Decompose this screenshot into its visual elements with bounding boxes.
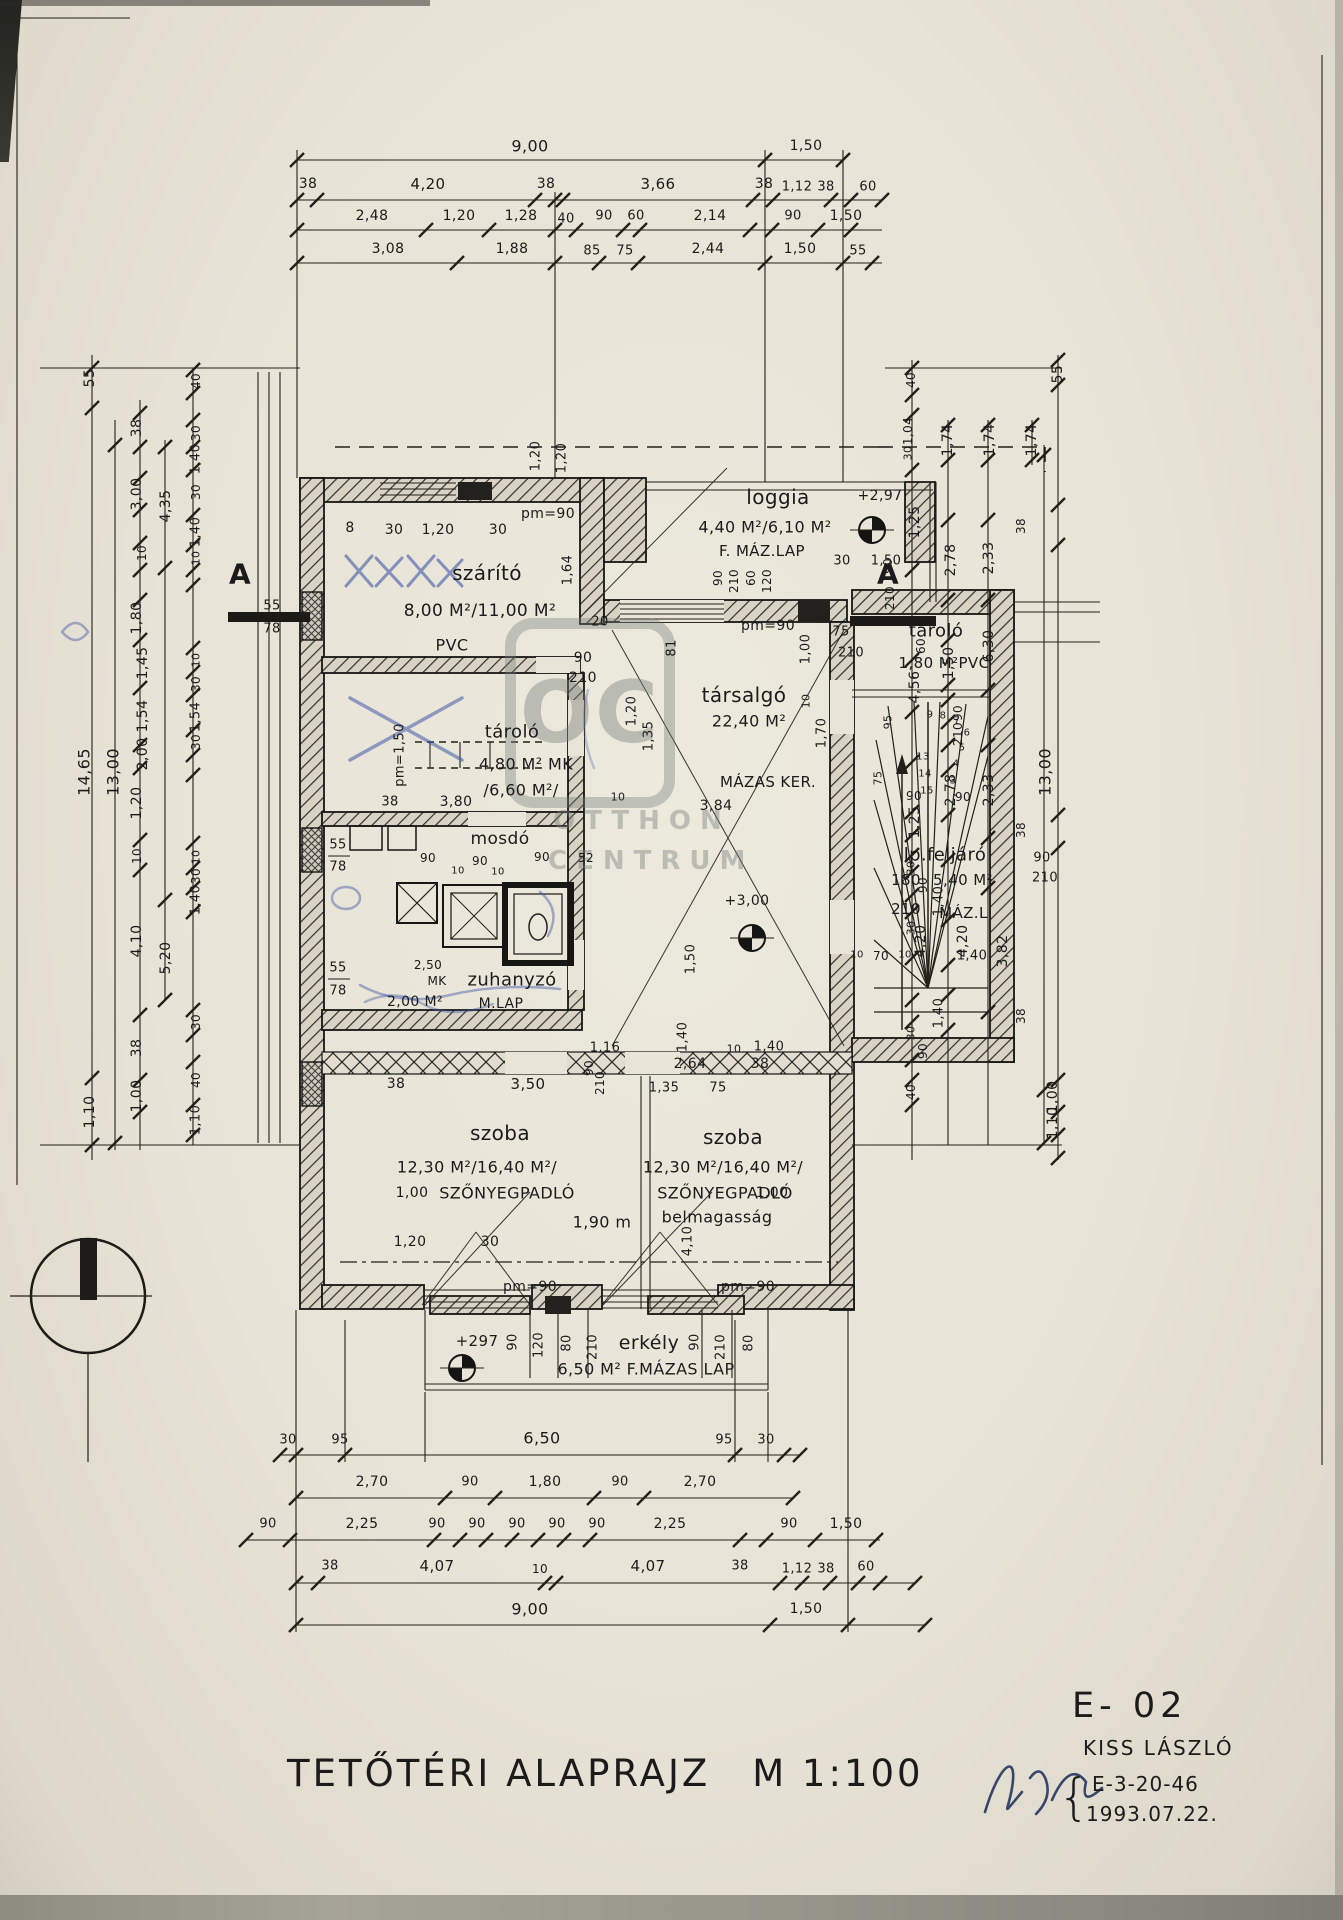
dim-label: 90 <box>955 790 971 804</box>
dim-label: 40 <box>189 373 203 389</box>
dim-label: 14 <box>918 769 932 780</box>
dim-label: 3,66 <box>641 175 676 193</box>
dim-label: 38 <box>299 176 318 192</box>
dim-label: 1,00 <box>129 1080 145 1113</box>
dim-label: 38 <box>381 795 398 810</box>
dim-label: 40 <box>904 1084 918 1100</box>
dim-label: 2,78 <box>943 544 959 577</box>
room-label: SZŐNYEGPADLÓ <box>439 1184 575 1203</box>
dim-label: 90 <box>711 570 725 586</box>
room-label: MÁZ.L. <box>939 904 993 922</box>
dim-label: 38 <box>817 1562 834 1577</box>
dim-label: 1,20 <box>129 787 145 820</box>
dim-label: 90 <box>428 1517 445 1532</box>
dim-label: 180 <box>891 871 921 889</box>
dim-label: 90 <box>506 1333 521 1350</box>
dim-label: 38 <box>1014 822 1028 838</box>
dim-label: 55 <box>263 599 280 614</box>
title-scale: M 1:100 <box>752 1752 923 1795</box>
dim-label: 38 <box>1014 518 1028 534</box>
dim-label: 3 <box>950 776 957 787</box>
dim-label: 1,25 <box>907 506 923 539</box>
dim-label: 1,45 <box>135 647 151 680</box>
dim-label: 4,80 M² MK <box>479 755 573 774</box>
dim-label: 60 <box>627 209 644 224</box>
dim-label: pm=90 <box>521 506 575 522</box>
dim-label: 1,12 <box>782 1562 813 1577</box>
dim-label: 10 <box>727 1043 742 1056</box>
dim-label: 10 <box>611 791 626 804</box>
dim-label: 90 <box>472 854 488 868</box>
dim-label: 10 <box>898 950 912 961</box>
dim-label: +3,00 <box>725 893 770 909</box>
dim-label: 1,74 <box>1024 424 1040 457</box>
dim-label: 2,00 M² <box>387 994 443 1010</box>
dim-label: +297 <box>456 1332 499 1350</box>
dim-label: 90 <box>780 1517 797 1532</box>
dim-label: 2,70 <box>684 1474 717 1490</box>
room-label: lp.feljáró <box>904 845 987 866</box>
dim-label: 90 <box>595 209 612 224</box>
dim-label: 30 <box>757 1433 774 1448</box>
dim-label: 10 <box>135 545 149 561</box>
dim-label: 30 <box>833 554 850 569</box>
dim-label: 3,50 <box>511 1075 546 1093</box>
dim-label: 210 <box>838 646 864 661</box>
title-text: TETŐTÉRI ALAPRAJZ <box>287 1752 710 1795</box>
dim-label: 1,00 <box>396 1185 429 1201</box>
dim-label: 55 <box>1050 365 1066 384</box>
dim-label: 38 <box>387 1076 406 1092</box>
dim-label: 30 <box>489 522 508 538</box>
dim-label: 30 <box>189 1014 203 1030</box>
dim-label: 4,10 <box>681 1226 696 1257</box>
room-label: loggia <box>746 485 809 509</box>
dim-label: 90 <box>534 850 550 864</box>
room-label: F. MÁZ.LAP <box>719 542 805 560</box>
dim-label: 5,20 <box>158 942 174 975</box>
dim-label: 3,82 <box>995 935 1011 968</box>
dim-label: 75 <box>616 244 633 259</box>
dim-label: 1,40 <box>957 949 988 964</box>
dim-label: 90 <box>688 1333 703 1350</box>
dim-label: 1,50 <box>830 208 863 224</box>
room-label: tároló <box>909 621 964 642</box>
room-label: 6,50 M² F.MÁZAS LAP <box>557 1360 734 1379</box>
dim-label: 40 <box>557 212 574 227</box>
dim-label: 1,20 <box>529 441 544 472</box>
dim-label: 210 <box>586 1334 601 1360</box>
dim-label: 1,50 <box>790 138 823 154</box>
dim-label: 2,33 <box>981 774 997 807</box>
dim-label: 3,00 <box>129 478 145 511</box>
dim-label: 1,00 <box>799 634 814 665</box>
dim-label: 30 <box>189 425 203 441</box>
dim-label: 1,88 <box>496 241 529 257</box>
dim-label: 2,14 <box>694 208 727 224</box>
dim-label: /6,60 M²/ <box>483 781 558 800</box>
dim-label: 1,50 <box>784 241 817 257</box>
author-name: KISS LÁSZLÓ <box>1083 1736 1234 1760</box>
dim-label: A <box>877 558 899 591</box>
dim-label: 38 <box>537 176 556 192</box>
dim-label: 30 <box>189 868 203 884</box>
dim-label: 4,20 <box>411 175 446 193</box>
room-label: 1,80 M²PVC <box>899 654 990 672</box>
dim-label: 10 <box>532 1562 548 1576</box>
dim-label: 5,40 M² <box>933 871 993 889</box>
dim-label: 4,07 <box>420 1557 455 1575</box>
dim-label: 22,40 M² <box>712 712 786 731</box>
dim-label: 30 <box>481 1234 500 1250</box>
dim-label: 4,07 <box>631 1557 666 1575</box>
dim-label: 30 <box>189 676 203 692</box>
dim-label: 38 <box>751 1056 770 1072</box>
dim-label: 95 <box>882 715 895 730</box>
dim-label: 9,00 <box>511 137 548 156</box>
dim-label: 2,70 <box>356 1474 389 1490</box>
dim-label: 10 <box>130 848 144 864</box>
dim-label: 3,80 <box>440 794 473 810</box>
room-label: szoba <box>703 1125 763 1149</box>
dim-label: 5 <box>959 743 966 754</box>
dim-label: 10 <box>451 866 465 877</box>
dim-label: 210 <box>727 569 741 593</box>
dim-label: 2,64 <box>674 1056 707 1072</box>
dim-label: 30 <box>279 1433 296 1448</box>
dim-label: 14,65 <box>75 748 94 796</box>
dim-label: 1,70 <box>815 718 830 749</box>
dim-label: 38 <box>129 1039 145 1058</box>
dim-label: 81 <box>665 639 680 656</box>
dim-label: 210 <box>569 670 597 686</box>
dim-label: 12,30 M²/16,40 M²/ <box>643 1158 803 1177</box>
dim-label: 10 <box>190 653 203 668</box>
dim-label: 1,20 <box>443 208 476 224</box>
room-label: PVC <box>436 636 469 655</box>
dim-label: 1,10 <box>82 1096 98 1129</box>
dim-label: 7 <box>954 716 961 727</box>
dim-label: 1,25 <box>907 806 923 839</box>
dim-label: 70 <box>873 949 889 963</box>
dim-label: 6,50 <box>523 1429 560 1448</box>
dim-label: 38 <box>1014 1008 1028 1024</box>
dim-label: 13,00 <box>104 748 123 796</box>
labels-layer: 9,001,50384,20383,66381,1238602,481,201,… <box>0 0 1343 1920</box>
dim-label: 90 <box>574 650 593 666</box>
dim-label: 3,08 <box>372 241 405 257</box>
drawing-title: TETŐTÉRI ALAPRAJZM 1:100 <box>287 1752 924 1795</box>
dim-label: 1,40 <box>189 517 204 548</box>
room-label: MÁZAS KER. <box>720 773 816 791</box>
dim-label: 13 <box>916 752 930 763</box>
dim-label: 2,33 <box>981 542 997 575</box>
dim-label: 20 <box>591 615 608 630</box>
scan-right-shadow <box>1335 0 1343 1920</box>
dim-label: 4,10 <box>129 925 145 958</box>
dim-label: 2,00 <box>135 738 151 771</box>
dim-label: 6 <box>964 728 971 739</box>
dim-label: pm=90 <box>741 618 795 634</box>
dim-label: 13,00 <box>1036 748 1055 796</box>
dim-label: 55 <box>329 838 346 853</box>
dim-label: 78 <box>329 984 346 999</box>
dim-label: 10 <box>800 694 813 709</box>
dim-label: 1,40 <box>932 998 947 1029</box>
dim-label: 1,50 <box>684 944 699 975</box>
sheet-number: E- 02 <box>1072 1686 1187 1726</box>
dim-label: 80 <box>742 1334 757 1351</box>
dim-label: 90 <box>548 1517 565 1532</box>
room-label: társalgó <box>702 683 787 707</box>
dim-label: 1,20 <box>422 522 455 538</box>
dim-label: 90 <box>461 1475 478 1490</box>
dim-label: 1,74 <box>982 424 998 457</box>
scan-top-shadow <box>0 0 430 6</box>
dim-label: 90 <box>508 1517 525 1532</box>
dim-label: 30 <box>189 734 203 750</box>
dim-label: 120 <box>532 1332 547 1358</box>
dim-label: 210 <box>593 1071 607 1095</box>
dim-label: 210 <box>714 1334 729 1360</box>
dim-label: 1,80 <box>529 1474 562 1490</box>
dim-label: 1,74 <box>940 424 956 457</box>
dim-label: 1,54 <box>189 702 204 733</box>
dim-label: 1,20 <box>625 696 640 727</box>
dim-label: 30 <box>905 1026 918 1041</box>
dim-label: 1,40 <box>189 444 204 475</box>
dim-label: 78 <box>263 622 280 637</box>
dim-label: +2,97 <box>858 488 903 504</box>
dim-label: 4,40 M²/6,10 M² <box>698 518 831 537</box>
dim-label: 90 <box>468 1517 485 1532</box>
dim-label: 1,40 <box>189 885 204 916</box>
dim-label: 80 <box>560 1334 575 1351</box>
dim-label: 90 <box>611 1475 628 1490</box>
dim-label: 8,00 M²/11,00 M² <box>404 601 556 621</box>
dim-label: 210 <box>891 900 921 918</box>
room-label: M.LAP <box>479 996 524 1012</box>
dim-label: 2,48 <box>356 208 389 224</box>
dim-label: 1,64 <box>561 555 576 586</box>
dim-label: 10 <box>190 850 203 865</box>
dim-label: 2,50 <box>414 958 442 972</box>
dim-label: 2,44 <box>692 241 725 257</box>
dim-label: 4,56 <box>907 671 923 704</box>
dim-label: 90 <box>784 209 801 224</box>
scan-table-edge <box>0 1895 1343 1920</box>
dim-label: 60 <box>744 570 758 586</box>
dim-label: 75 <box>872 771 885 786</box>
dim-label: 4,20 <box>913 925 929 958</box>
dim-label: 210 <box>1032 871 1058 886</box>
dim-label: 85 <box>583 244 600 259</box>
dim-label: 15 <box>920 786 934 797</box>
dim-label: 1,00 <box>756 1185 789 1201</box>
dim-label: 10 <box>850 950 864 961</box>
dim-label: 38 <box>731 1559 748 1574</box>
dim-label: 38 <box>817 180 834 195</box>
dim-label: 95 <box>331 1433 348 1448</box>
dim-label: 1,35 <box>642 721 657 752</box>
dim-label: 2,25 <box>346 1516 379 1532</box>
dim-label: 1,16 <box>590 1041 621 1056</box>
dim-label: 1,10 <box>189 1105 204 1136</box>
dim-label: 55 <box>849 244 866 259</box>
dim-label: pm=90 <box>503 1279 557 1295</box>
dim-label: 55 <box>82 369 98 388</box>
dim-label: 1,28 <box>505 208 538 224</box>
dim-label: 10 <box>190 551 203 566</box>
dim-label: 95 <box>715 1433 732 1448</box>
dim-label: 1,10 <box>1045 1107 1061 1140</box>
dim-label: 38 <box>755 176 774 192</box>
dim-label: pm=1,50 <box>393 723 408 787</box>
dim-label: A <box>229 558 251 591</box>
dim-label: 4,35 <box>158 490 174 523</box>
dim-label: 8 <box>345 520 354 536</box>
dim-label: 1,40 <box>676 1022 691 1053</box>
dim-label: 1,40 <box>754 1040 785 1055</box>
room-label: belmagasság <box>662 1208 773 1227</box>
doc-reference: E-3-20-46 <box>1092 1772 1199 1796</box>
dim-label: 30 <box>189 484 203 500</box>
dim-label: 60 <box>859 180 876 195</box>
dim-label: 1,35 <box>649 1081 680 1096</box>
room-label: zuhanyzó <box>467 970 556 991</box>
dim-label: 1,20 <box>555 443 570 474</box>
dim-label: 90 <box>916 1043 930 1059</box>
dim-label: 1,50 <box>790 1601 823 1617</box>
room-label: szoba <box>470 1121 530 1145</box>
dim-label: 10 <box>491 867 505 878</box>
dim-label: 12,30 M²/16,40 M²/ <box>397 1158 557 1177</box>
dim-label: 55 <box>329 961 346 976</box>
dim-label: 40 <box>189 1072 203 1088</box>
dim-label: 90 <box>420 851 436 865</box>
dim-label: 52 <box>578 851 594 865</box>
dim-label: 38 <box>129 419 145 438</box>
dim-label: 38 <box>321 1559 338 1574</box>
dim-label: 78 <box>329 860 346 875</box>
doc-date: 1993.07.22. <box>1086 1802 1218 1826</box>
dim-label: 2,25 <box>654 1516 687 1532</box>
room-label: szárító <box>452 561 522 585</box>
dim-label: 9,00 <box>511 1600 548 1619</box>
dim-label: 8 <box>940 711 947 722</box>
dim-label: 90 <box>588 1517 605 1532</box>
dim-label: 3,84 <box>700 798 733 814</box>
dim-label: 9 <box>927 710 934 721</box>
dim-label: 1,54 <box>135 700 151 733</box>
dim-label: 1,90 m <box>573 1213 632 1232</box>
dim-label: 1,80 <box>129 602 145 635</box>
dim-label: 1,04 <box>901 417 915 445</box>
dim-label: 90 <box>1033 851 1050 866</box>
dim-label: 1,50 <box>830 1516 863 1532</box>
room-label: erkély <box>619 1332 679 1354</box>
dim-label: 60 <box>857 1560 874 1575</box>
dim-label: 1,12 <box>782 180 813 195</box>
dim-label: 75 <box>832 625 849 640</box>
dim-label: 30 <box>902 446 915 461</box>
room-label: mosdó <box>470 829 529 849</box>
dim-label: MK <box>427 974 446 988</box>
dim-label: 90 <box>259 1517 276 1532</box>
dim-label: pm=90 <box>721 1279 775 1295</box>
dim-label: 30 <box>385 522 404 538</box>
room-label: tároló <box>485 722 540 743</box>
dim-label: 120 <box>760 569 774 593</box>
dim-label: 75 <box>709 1081 726 1096</box>
dim-label: 4 <box>953 759 960 770</box>
blueprint-sheet: OC OTTHON CENTRUM 9,001,50384,20383,6638… <box>0 0 1343 1920</box>
dim-label: 1,20 <box>394 1234 427 1250</box>
dim-label: 40 <box>904 372 918 388</box>
